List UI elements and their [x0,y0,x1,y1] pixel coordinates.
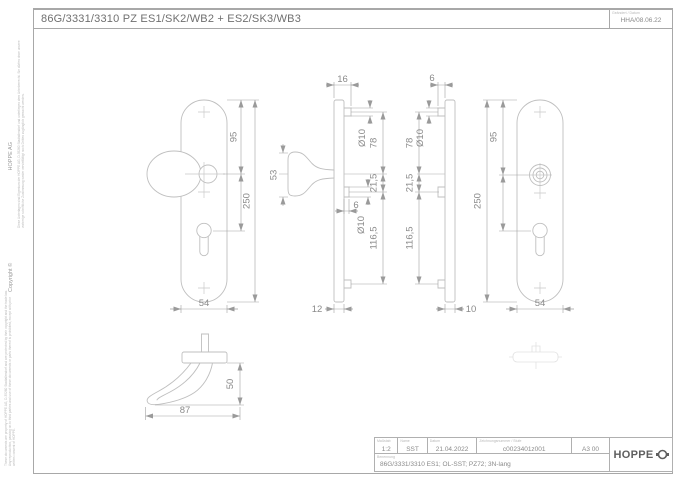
dim-label: 54 [535,298,546,309]
drawing-number-value: c0023401z001 [477,446,571,453]
dim-label: 116,5 [405,226,416,249]
dim-label: 250 [473,193,484,209]
description-value: 86G/3331/3310 ES1; OL-SST; PZ72; 3N-lang [380,461,511,468]
format-value: A3 00 [572,446,609,453]
scale-cell: Maßstab 1:2 [374,437,397,454]
dim-label: 54 [199,298,210,309]
name-label: Name [400,439,409,443]
drawing-number-cell: Zeichnungsnummer / Stufe c0023401z001 [476,437,571,454]
dim-label: 95 [229,132,240,143]
view-lever-handle-top [509,342,562,369]
copyright-notice-english: These documents are property of HOPPE AG… [4,288,16,466]
format-cell: A3 00 [571,437,610,454]
view-interior-plate-side: 6 Ø10 78 21,5 116,5 10 [405,73,477,315]
dim-label: 21,5 [405,174,416,193]
copyright-notice-german: Diese Unterlagen sind Eigentum der HOPPE… [17,36,25,228]
company-name: HOPPE AG [8,142,14,170]
name-cell: Name SST [397,437,426,454]
dim-label: Ø10 [415,129,426,147]
dim-label: 250 [242,193,253,209]
dim-label: Ø10 [357,129,368,147]
dim-label: 6 [353,200,358,211]
dim-label: 87 [180,405,191,416]
dim-label: 12 [312,304,323,315]
date-value: 21.04.2022 [428,446,477,453]
description-label: Benennung [377,455,395,459]
view-exterior-plate: 95 250 54 [147,100,259,313]
view-exterior-plate-side: 53 16 Ø10 78 21,5 6 Ø10 116,5 12 [269,74,388,315]
dimensions [279,82,387,313]
scale-value: 1:2 [375,446,397,453]
drawing-number-label: Zeichnungsnummer / Stufe [479,439,521,443]
title-block: Maßstab 1:2 Name SST Datum 21.04.2022 Ze… [374,437,673,472]
lever-handle-outline [147,363,212,405]
description-cell: Benennung 86G/3331/3310 ES1; OL-SST; PZ7… [374,454,610,472]
dim-label: 116,5 [369,226,380,249]
dim-label: 78 [405,138,416,149]
date-label: Datum [430,439,440,443]
title-block-grid: Maßstab 1:2 Name SST Datum 21.04.2022 Ze… [374,437,610,472]
copyright-line: Copyright © HOPPE AG [8,142,14,292]
dim-label: 16 [337,74,348,85]
view-interior-plate: 95 250 54 [473,100,575,313]
brand-cell: HOPPE [610,437,673,472]
technical-drawing: 95 250 54 [33,8,673,474]
hoppe-logo-icon [656,448,669,461]
dimensions [415,82,464,313]
scale-label: Maßstab [377,439,391,443]
date-cell: Datum 21.04.2022 [427,437,477,454]
drawing-sheet: Diese Unterlagen sind Eigentum der HOPPE… [0,0,679,480]
dim-label: 10 [466,304,477,315]
view-lever-handle-side: 50 87 [146,334,245,420]
knob-profile [288,152,334,196]
brand-name: HOPPE [613,449,653,461]
dim-label: 78 [369,138,380,149]
dim-label: 21,5 [369,174,380,193]
dim-label: 95 [489,132,500,143]
dim-label: 53 [269,170,280,181]
name-value: SST [398,446,426,453]
dim-label: 6 [429,73,434,84]
dim-label: 50 [225,379,236,390]
dim-label: Ø10 [356,216,367,234]
